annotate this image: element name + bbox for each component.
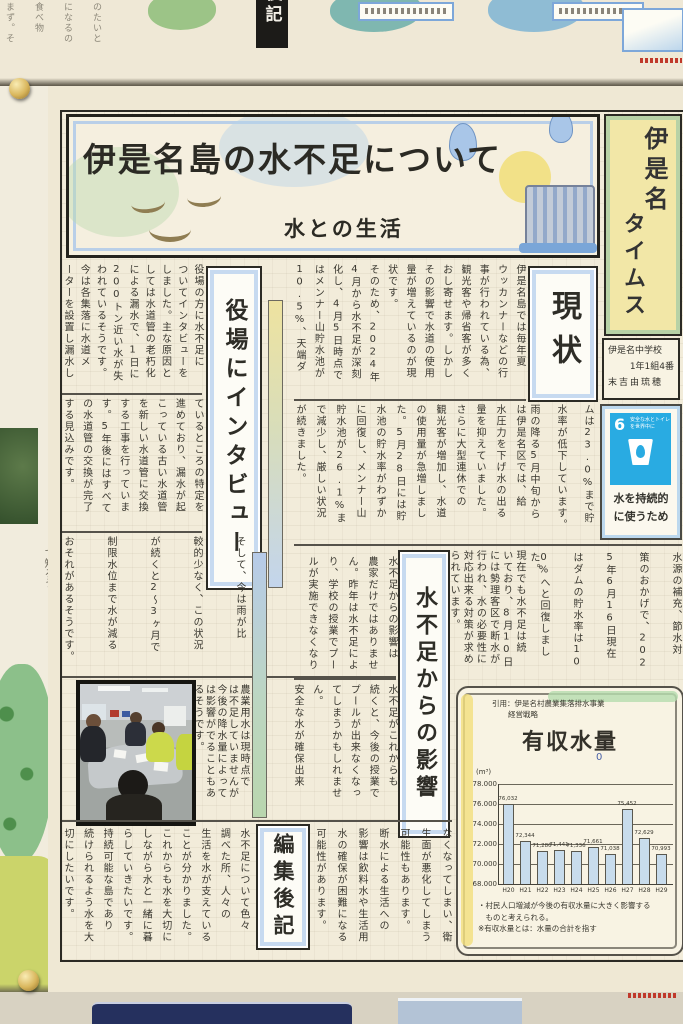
chart-y-tick: 68.000 xyxy=(465,880,497,888)
text-column: ん。昨年は水不足によ xyxy=(346,556,356,672)
paper-1 xyxy=(114,749,127,759)
text-column: 役場の方に水不足に xyxy=(192,264,202,390)
text-column: 10.5%、天端ダ xyxy=(294,264,304,396)
neighbor-headline-text: 後記 xyxy=(260,0,285,48)
section-header-editor: 編集後記 xyxy=(256,824,310,950)
text-column: これからも水を大切に xyxy=(160,828,170,950)
text-column: 水不足がこれからも xyxy=(386,684,396,816)
text-column: 水不足からの影響は xyxy=(386,556,396,672)
shelf-red-item xyxy=(110,710,119,717)
text-column: 断水による生活への xyxy=(377,828,387,950)
chart-bar xyxy=(571,851,582,884)
text-column: 貯水池が26.1%ま xyxy=(334,404,344,540)
text-column: しました。主な原因と xyxy=(160,264,170,390)
section-header-interview-text: 役場にインタビュー xyxy=(217,298,251,559)
text-column: の水道管の交換が完了 xyxy=(81,398,91,526)
gradient-divider-1 xyxy=(268,300,283,588)
chart-y-tick: 70.000 xyxy=(465,860,497,868)
text-column: は不足していませんが xyxy=(227,684,237,814)
text-column: 5年6月16日現在 xyxy=(604,552,614,670)
text-column: による漏水で、1日に xyxy=(127,264,137,390)
neighbor-credit-line-2 xyxy=(628,993,676,998)
text-column: ムは23.0%まで貯 xyxy=(582,404,592,538)
text-column: で減少し、厳しい状況 xyxy=(314,404,324,540)
text-column: その影響で水道の使用 xyxy=(422,264,432,396)
text-column: 生面が悪化してしまう xyxy=(419,828,429,950)
chart-bar-label: 71,038 xyxy=(598,846,622,852)
text-column: 水不足について色々 xyxy=(238,828,248,950)
text-column: らしていきたいです。 xyxy=(121,828,131,950)
chart-gridline xyxy=(499,804,673,805)
chart-x-label: H21 xyxy=(517,887,534,894)
kage-text-block3: なくなってしまい、衛生面が悪化してしまう可能性もあります。断水による生活への影響… xyxy=(314,828,450,950)
dam-drawing xyxy=(525,185,595,251)
neighbor-panel-bluegray xyxy=(398,998,522,1024)
text-column: には勢理客区で断水が xyxy=(488,550,498,672)
neighbor-photo-green xyxy=(0,428,38,524)
divider xyxy=(62,820,452,822)
foreground-person-shoulders xyxy=(106,794,162,822)
text-column: 雨の降る5月中旬から xyxy=(528,404,538,538)
chart-bar xyxy=(554,850,565,884)
interview-photo-scene xyxy=(80,684,192,822)
text-column: が続きました。 xyxy=(294,404,304,540)
section-header-genjo: 現状 xyxy=(528,266,598,402)
poster-title: 伊是名島の水不足について xyxy=(83,133,563,181)
sdg6-number: 6 xyxy=(614,415,625,434)
sdg6-icon: 6 安全な水とトイレ を世界中に xyxy=(610,413,671,485)
text-column: 状です。 xyxy=(386,264,396,396)
text-column: なくなってしまい、衛 xyxy=(440,828,450,950)
chart-note-1: ・村民人口増減が今後の有収水量に大きく影響する xyxy=(478,900,668,912)
chart-x-label: H29 xyxy=(653,887,670,894)
chart-x-label: H27 xyxy=(619,887,636,894)
person-edge-body xyxy=(176,734,192,770)
text-column: た。5月28日には貯 xyxy=(394,404,404,540)
chart-bar xyxy=(503,804,514,884)
text-column: 水の確保が困難になる xyxy=(335,828,345,950)
ceiling-light xyxy=(98,686,130,691)
dam-pool-drawing xyxy=(519,243,597,253)
section-header-genjo-text: 現状 xyxy=(541,290,585,378)
person-left-body xyxy=(80,726,106,762)
poster-subtitle: 水との生活 xyxy=(284,213,404,243)
text-column: す。5年後にはすべて xyxy=(99,398,109,526)
chart-citation-2: 経営戦略 xyxy=(508,709,538,720)
neighbor-corner-box xyxy=(622,8,683,52)
neighbor-text-fragments: のたいとになるの食べ物まず。そ xyxy=(4,2,100,76)
sdg6-label-line1: 安全な水とトイレ xyxy=(630,417,670,424)
text-column: 対応出来る対策が求め xyxy=(461,550,471,672)
text-column: 今後の降水量によって xyxy=(215,684,225,814)
text-column: 伊是名島では毎年夏 xyxy=(514,264,524,396)
neighbor-caption-box-1 xyxy=(358,2,454,21)
text-column: ているところの特定を xyxy=(192,398,202,526)
sdg6-label-line2: を世界中に xyxy=(630,424,670,431)
text-column: は伊是名区では、給 xyxy=(514,404,524,540)
chart-bar xyxy=(622,809,633,884)
text-column: おし寄せます。しかし xyxy=(441,264,451,396)
person-right-body xyxy=(146,732,174,762)
chart-x-label: H25 xyxy=(585,887,602,894)
sdg-caption: 水を持続的 に使うため xyxy=(602,490,680,525)
chart-bar-label: 76,032 xyxy=(496,796,520,802)
kage-text-block2: 水不足がこれからも続くと、今後の授業でプールが出来なくなってしまうかもしれません… xyxy=(292,684,396,816)
text-column: ウッカンナーなどの行 xyxy=(496,264,506,396)
kage-text-block1: 水不足からの影響は農家だけではありません。昨年は水不足により、学校の授業でプール… xyxy=(306,556,396,672)
text-column: 生活を水が支えている xyxy=(199,828,209,950)
text-column: 食べ物 xyxy=(33,2,42,76)
author-box: 伊是名中学校 1年1組4番 末吉由琉穂 xyxy=(602,338,680,400)
photo-of-wall-newspaper: のたいとになるの食べ物まず。そ 後記 て知ろう！ 伊是名島の水不足について 水と… xyxy=(0,0,683,1024)
person-center-body xyxy=(125,722,146,746)
face-eye-right xyxy=(186,186,221,208)
neighbor-header-navy xyxy=(92,1002,352,1024)
text-column: 水池の貯水率がわずか xyxy=(374,404,384,540)
interview-text-band4: 農業用水は現時点では不足していませんが今後の降水量によっては影響がでることもある… xyxy=(192,684,248,814)
section-header-kage-text: 水不足からの影響 xyxy=(408,586,440,802)
divider xyxy=(294,678,396,680)
interview-text-band1: 役場の方に水不足についてインタビューをしました。主な原因としては水道管の老朽化に… xyxy=(62,264,202,390)
text-column: 事が行われている為、 xyxy=(477,264,487,396)
neighbor-credit-line xyxy=(640,58,682,63)
text-column: おそれがあるそうです。 xyxy=(62,536,72,666)
chart-box: 引用：伊是名村農業集落排水事業 経営戦略 有収水量 0 (m³) 78.0007… xyxy=(456,686,683,956)
text-column: り、学校の授業でプー xyxy=(326,556,336,672)
chart-x-label: H28 xyxy=(636,887,653,894)
divider xyxy=(62,393,202,395)
text-column: 量が増えているのが現 xyxy=(404,264,414,396)
text-column: しながら水と一緒に暮 xyxy=(140,828,150,950)
divider xyxy=(294,399,526,401)
chart-x-label: H23 xyxy=(551,887,568,894)
text-column: はメンナー山貯水池が xyxy=(312,264,322,396)
text-column: 策のおかげで、202 xyxy=(637,552,647,670)
genjo-text-block-c: ムは23.0%まで貯水率が低下しています。雨の降る5月中旬から xyxy=(528,404,592,538)
text-column: 200トン近い水が失 xyxy=(111,264,121,390)
chart-bar xyxy=(537,851,548,884)
text-column: する見込みです。 xyxy=(62,398,72,526)
sdg6-box: 6 安全な水とトイレ を世界中に 水を持続的 に使うため xyxy=(600,404,682,540)
text-column: 行われ、水の必要性に xyxy=(474,550,484,672)
text-column: そして、今は雨が比 xyxy=(234,536,244,666)
text-column: プールが出来なくなっ xyxy=(348,684,358,816)
chart-note-3: ※有収水量とは：水量の合計を指す xyxy=(478,923,668,935)
class-line: 1年1組4番 xyxy=(608,359,674,375)
text-column: 続くと、今後の授業で xyxy=(367,684,377,816)
text-column: 持続可能な島であり xyxy=(101,828,111,950)
chart-bar-label: 72,344 xyxy=(513,833,537,839)
text-column: はダムの貯水率は10 xyxy=(571,552,581,670)
text-column: 観光客や帰省客が多く xyxy=(459,264,469,396)
chart-y-tick: 74.000 xyxy=(465,820,497,828)
gradient-divider-2 xyxy=(252,552,267,818)
text-column: ルが実施できなくなり xyxy=(306,556,316,672)
chart-notes: ・村民人口増減が今後の有収水量に大きく影響する ものと考えられる。 ※有収水量と… xyxy=(478,900,668,935)
text-column: になるの xyxy=(62,2,71,76)
chart-bar xyxy=(588,847,599,884)
chart-y-tick: 78.000 xyxy=(465,780,497,788)
title-banner: 伊是名島の水不足について 水との生活 xyxy=(66,114,600,258)
chart-note-2: ものと考えられる。 xyxy=(478,912,668,924)
text-column: ん。 xyxy=(311,684,321,816)
divider xyxy=(62,531,202,533)
chart-citation-1: 引用：伊是名村農業集落排水事業 xyxy=(492,698,605,709)
sdg-caption-line2: に使うため xyxy=(602,508,680,526)
interview-text-band2: ているところの特定を進めており、漏水が起こっている古い水道管を新しい水道管に交換… xyxy=(62,398,202,526)
text-column: いており、8月10日 xyxy=(501,550,511,672)
text-column: ーターを設置し漏水し xyxy=(62,264,72,390)
editor-text-block: 水不足について色々調べた所、人々の生活を水が支えていることが分かりました。これか… xyxy=(62,828,248,950)
text-column: そのため、2024年 xyxy=(367,264,377,396)
neighbor-headline-box: 後記 xyxy=(256,0,288,48)
text-column: 化し、4月5日時点で xyxy=(331,264,341,396)
push-pin-bottom xyxy=(18,970,39,991)
text-column: が続くと2〜3ヶ月で xyxy=(148,536,158,666)
text-column: しては水道管の老朽化 xyxy=(143,264,153,390)
chart-bar xyxy=(605,854,616,884)
school-name: 伊是名中学校 xyxy=(608,343,674,359)
genjo-text-block-a: 伊是名島では毎年夏ウッカンナーなどの行事が行われている為、観光客や帰省客が多くお… xyxy=(294,264,524,396)
text-column: ついてインタビューを xyxy=(176,264,186,390)
text-column: まず。そ xyxy=(4,2,13,76)
chart-title-mark: 0 xyxy=(596,752,602,763)
text-column: 水源の補充、節水対 xyxy=(670,552,680,670)
text-column: 現在でも水不足は続 xyxy=(514,550,524,672)
text-column: われているそうです。 xyxy=(95,264,105,390)
text-column: 量を抑えていました。 xyxy=(474,404,484,540)
text-column: 今は各集落に水道メ xyxy=(78,264,88,390)
chart-x-label: H22 xyxy=(534,887,551,894)
shelf-blue-item xyxy=(122,711,130,717)
text-column: こっている古い水道管 xyxy=(155,398,165,526)
chart-y-tick: 72.000 xyxy=(465,840,497,848)
text-column: に回復し、メンナー山 xyxy=(354,404,364,540)
text-column: 4月から水不足が深刻 xyxy=(349,264,359,396)
water-drop-icon xyxy=(636,445,645,458)
text-column: 0%へと回復しました。 xyxy=(528,552,548,670)
sdg6-label: 安全な水とトイレ を世界中に xyxy=(630,417,670,430)
text-column: さらに大型連休での xyxy=(454,404,464,540)
chart-x-label: H26 xyxy=(602,887,619,894)
text-column: 観光客が増加し、水道 xyxy=(434,404,444,540)
text-column: 農家だけではありませ xyxy=(366,556,376,672)
text-column: 可能性があります。 xyxy=(314,828,324,950)
chart-title: 有収水量 xyxy=(458,724,682,756)
genjo-text-block-b: は伊是名区では、給水圧力を下げ水の出る量を抑えていました。さらに大型連休での観光… xyxy=(294,404,524,540)
text-column: 調べた所、人々の xyxy=(218,828,228,950)
author-name: 末吉由琉穂 xyxy=(608,375,674,391)
ceiling-light-2 xyxy=(142,688,168,692)
divider xyxy=(294,544,682,546)
bar-chart-plot: 78.00076.00074.00072.00070.00068.00076,0… xyxy=(498,784,673,885)
chart-y-unit: (m³) xyxy=(476,768,491,776)
text-column: ことが分かりました。 xyxy=(179,828,189,950)
masthead-title-right: 伊是名 xyxy=(637,126,672,216)
genjo-text-block-d: 水源の補充、節水対策のおかげで、2025年6月16日現在はダムの貯水率は100%… xyxy=(528,552,680,670)
genjo-text-block-e: 現在でも水不足は続いており、8月10日には勢理客区で断水が行われ、水の必要性に対… xyxy=(448,550,524,672)
text-column: 農業用水は現時点で xyxy=(238,684,248,814)
text-column: の使用量が急増しまし xyxy=(414,404,424,540)
text-column: 切にしたいです。 xyxy=(62,828,72,950)
chart-x-label: H24 xyxy=(568,887,585,894)
text-column: 較的少なく、この状況 xyxy=(191,536,201,666)
whiteboard xyxy=(164,706,186,726)
text-column: 進めており、漏水が起 xyxy=(173,398,183,526)
text-column: 影響は飲料水や生活用 xyxy=(356,828,366,950)
interview-text-band3: そして、今は雨が比較的少なく、この状況が続くと2〜3ヶ月で制限水位まで水が減るお… xyxy=(62,536,244,666)
chart-gridline xyxy=(499,824,673,825)
chart-bar-label: 75,452 xyxy=(615,801,639,807)
text-column: 安全な水が確保出来 xyxy=(292,684,302,816)
text-column: てしまうかもしれませ xyxy=(330,684,340,816)
text-column: 可能性もあります。 xyxy=(398,828,408,950)
chart-bar-label: 70,993 xyxy=(649,846,673,852)
masthead-box: 伊是名 タイムス xyxy=(604,114,682,336)
text-column: は影響がでることもあ xyxy=(204,684,214,814)
chart-bar xyxy=(639,838,650,884)
text-column: のたいと xyxy=(91,2,100,76)
chart-gridline xyxy=(499,784,673,785)
text-column: 水圧力を下げ水の出る xyxy=(494,404,504,540)
chart-bar-label: 72,629 xyxy=(632,830,656,836)
chart-bar-label: 71,661 xyxy=(581,839,605,845)
face-smile xyxy=(149,217,191,242)
masthead-title-left: タイムス xyxy=(616,212,648,320)
section-header-editor-text: 編集後記 xyxy=(268,833,298,941)
chart-y-tick: 76.000 xyxy=(465,800,497,808)
text-column: を新しい水道管に交換 xyxy=(136,398,146,526)
chart-bar xyxy=(656,854,667,884)
text-column: する工事を行っていま xyxy=(118,398,128,526)
paper-3 xyxy=(154,761,169,771)
text-column: 続けられるよう水を大 xyxy=(82,828,92,950)
section-header-kage: 水不足からの影響 xyxy=(398,550,450,838)
interview-photo xyxy=(76,680,196,826)
sdg-caption-line1: 水を持続的 xyxy=(602,490,680,508)
chart-x-label: H20 xyxy=(500,887,517,894)
text-column: 水率が低下しています。 xyxy=(555,404,565,538)
push-pin-top xyxy=(9,78,30,99)
text-column: 制限水位まで水が減る xyxy=(105,536,115,666)
